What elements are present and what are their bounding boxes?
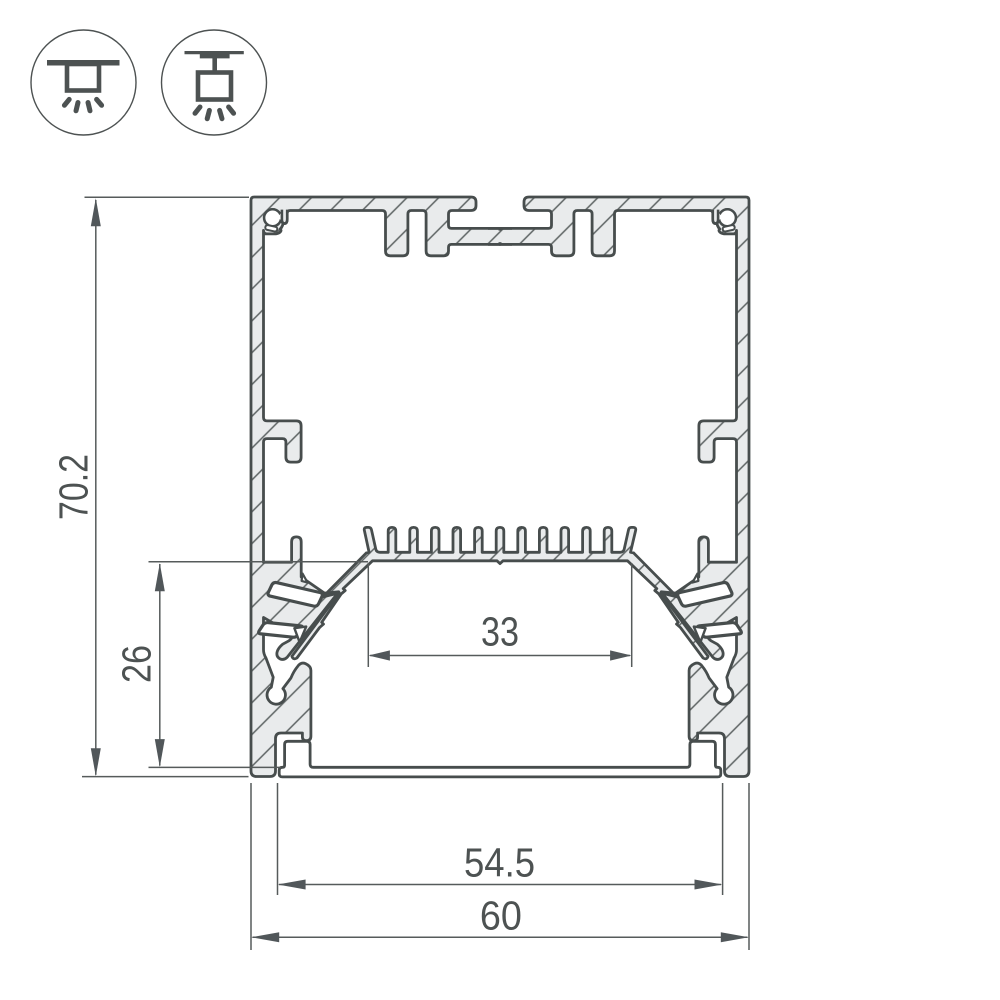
svg-text:33: 33: [481, 609, 519, 655]
svg-text:26: 26: [114, 645, 160, 683]
svg-text:70.2: 70.2: [51, 454, 97, 520]
svg-text:54.5: 54.5: [464, 839, 535, 885]
svg-text:60: 60: [480, 893, 522, 939]
